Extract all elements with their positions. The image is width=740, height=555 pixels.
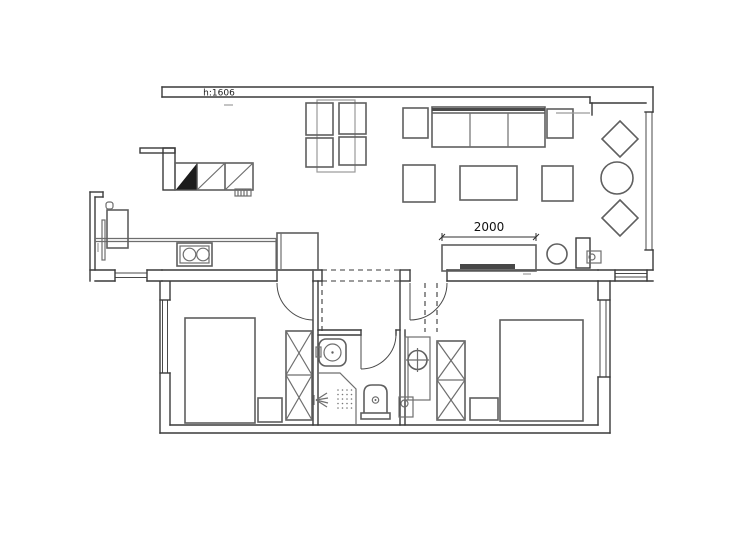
ottomans [403,165,573,202]
bedroom-2-door [410,283,447,320]
bathroom-walls [313,281,405,425]
wash-basin-niche [405,337,430,400]
dining-table-set [306,100,366,172]
outer-walls [90,87,653,433]
tv [460,264,515,269]
bedroom-1-door [277,283,313,320]
fridge [102,202,128,260]
corner-cabinet-fill [176,164,197,190]
bedroom-2-bed [500,320,583,421]
entry-cabinet [277,233,318,270]
beam-height-label: h:1606 [203,89,235,99]
bedroom-1-bed [185,318,255,423]
balcony-divider [576,103,592,268]
bathroom-washbasin [316,339,346,366]
floor-plan-page: 2000 h:1606 [0,0,740,555]
tv-cabinet [442,245,536,271]
balcony-round-table [601,162,633,194]
floor-drain-box-living [587,251,601,263]
kitchen-wall-stubs [140,148,175,190]
bedroom-1-nightstand [258,398,282,422]
shower-dots [337,389,352,409]
bedroom-2-wardrobe [437,341,465,420]
shower-spray-icon [314,393,328,407]
bathroom-door [361,334,396,369]
tv-dimension: 2000 [439,220,539,241]
shower-area [314,373,356,424]
toilet [361,385,390,419]
coffee-table [460,166,517,200]
entry-dashed-zone [322,270,437,332]
plant [547,244,567,264]
living-sofa [432,107,545,147]
bedroom-2-nightstand [470,398,498,420]
bedroom-1-wardrobe [286,331,312,420]
floor-plan-drawing: 2000 h:1606 [0,0,740,555]
wall-cabinets [175,163,253,190]
tv-dimension-text: 2000 [474,220,505,234]
stove [177,243,212,266]
